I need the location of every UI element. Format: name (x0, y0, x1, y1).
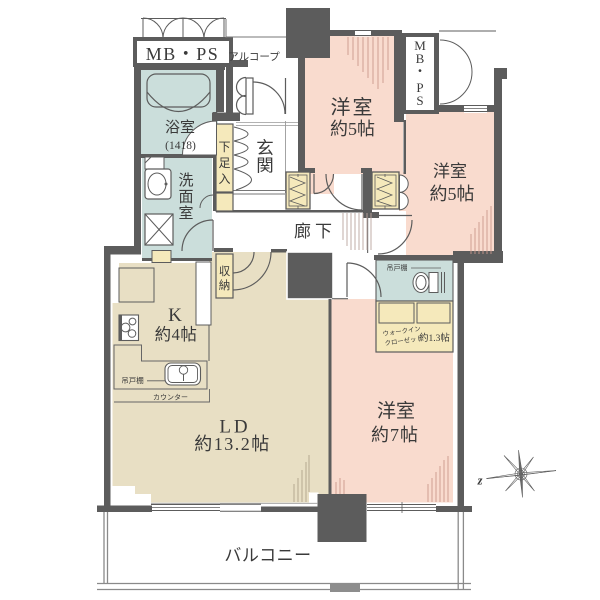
svg-text:MB・PS: MB・PS (146, 44, 220, 64)
svg-text:洋室: 洋室 (433, 162, 467, 181)
svg-text:K: K (168, 305, 182, 326)
svg-text:約5帖: 約5帖 (330, 119, 375, 139)
svg-text:収: 収 (219, 265, 231, 278)
svg-text:アルコープ: アルコープ (228, 51, 280, 63)
svg-text:廊下: 廊下 (294, 222, 336, 241)
svg-text:室: 室 (178, 205, 193, 222)
svg-text:吊戸棚: 吊戸棚 (121, 375, 144, 385)
svg-text:S: S (416, 93, 423, 108)
svg-text:足: 足 (218, 156, 230, 170)
svg-text:関: 関 (256, 156, 274, 176)
svg-text:下: 下 (218, 140, 230, 154)
svg-text:カウンター: カウンター (153, 393, 188, 402)
svg-text:入: 入 (218, 172, 230, 186)
svg-text:洋室: 洋室 (377, 400, 415, 422)
svg-text:吊戸棚: 吊戸棚 (387, 263, 408, 272)
svg-text:約1.3帖: 約1.3帖 (419, 332, 450, 344)
svg-text:洗: 洗 (178, 172, 193, 189)
svg-text:(1418): (1418) (165, 140, 196, 152)
svg-text:納: 納 (219, 279, 231, 292)
svg-text:浴室: 浴室 (165, 119, 195, 136)
svg-text:洋室: 洋室 (331, 96, 375, 119)
svg-text:z: z (477, 474, 483, 488)
svg-text:約4帖: 約4帖 (155, 325, 198, 344)
svg-text:バルコニー: バルコニー (224, 546, 311, 565)
svg-text:約7帖: 約7帖 (371, 425, 419, 445)
svg-text:面: 面 (178, 190, 193, 206)
svg-text:約5帖: 約5帖 (430, 184, 475, 204)
svg-text:・: ・ (413, 64, 426, 79)
svg-text:約13.2帖: 約13.2帖 (194, 434, 271, 454)
